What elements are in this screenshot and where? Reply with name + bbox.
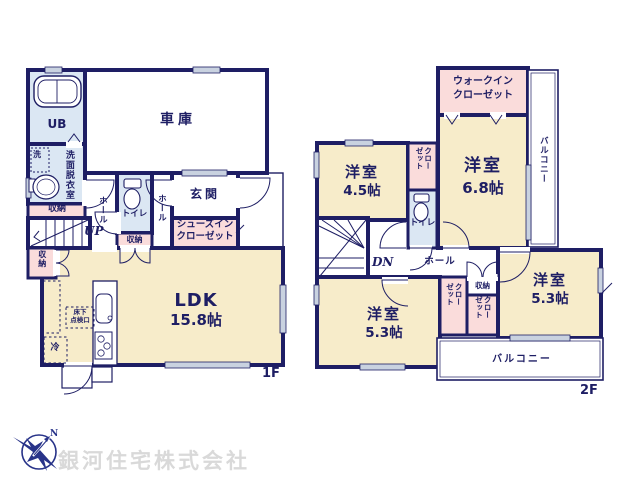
label-washroom: 洗面脱衣室 <box>63 150 73 200</box>
label-toilet-1f: トイレ <box>118 210 151 219</box>
north-indicator: N <box>50 429 58 439</box>
label-bedroom45: 洋室 <box>322 164 402 181</box>
label-bedroom53a-size: 5.3帖 <box>344 326 424 341</box>
label-hall-2: ホール <box>156 194 165 223</box>
label-stairs-up: UP <box>84 225 104 238</box>
bedroom-45 <box>317 143 408 220</box>
label-ldk-size: 15.8帖 <box>146 312 246 329</box>
label-shoe-closet-2: クローゼット <box>172 232 238 242</box>
label-bedroom53a: 洋室 <box>344 306 424 323</box>
company-logo: N <box>13 429 58 471</box>
label-bedroom68: 洋室 <box>443 157 523 176</box>
label-floor-2f: 2F <box>580 384 598 398</box>
label-closet-b: クローゼット <box>442 283 465 331</box>
label-shoe-closet-1: シューズイン <box>172 220 238 230</box>
label-hall-1: ホール <box>97 196 106 225</box>
label-unit-bath: UB <box>40 118 74 131</box>
label-wic-2: クローゼット <box>438 90 528 101</box>
label-floor-1f: 1F <box>262 367 280 381</box>
label-underfloor-2: 点検口 <box>66 317 94 324</box>
entry-porch <box>238 173 283 248</box>
label-ldk: LDK <box>146 291 246 311</box>
floor-plan-drawing: N <box>0 0 640 480</box>
porch-steps-1f <box>62 367 112 388</box>
kitchen-fixture <box>93 281 117 365</box>
label-closet-c: クローゼット <box>471 296 494 336</box>
label-storage-b: 収納 <box>118 236 151 245</box>
company-name: 銀河住宅株式会社 <box>58 445 250 475</box>
toilet-2f-fixture <box>414 194 429 221</box>
label-stairs-down: DN <box>372 256 393 269</box>
label-storage-a: 収納 <box>30 205 84 215</box>
label-bedroom53b-size: 5.3帖 <box>510 292 590 307</box>
label-hall-2f: ホール <box>410 257 470 267</box>
label-fridge: 冷 <box>44 344 66 354</box>
label-closet-a: クローゼット <box>411 147 435 191</box>
toilet-1f-fixture <box>124 179 141 209</box>
label-washer: 洗 <box>33 151 41 160</box>
label-entrance: 玄関 <box>185 188 225 201</box>
label-storage-2f: 収納 <box>467 282 498 290</box>
label-wic-1: ウォークイン <box>438 76 528 87</box>
label-balcony-bottom: バルコニー <box>470 354 574 365</box>
label-bedroom68-size: 6.8帖 <box>443 180 523 197</box>
label-balcony-right: バルコニー <box>538 136 547 184</box>
bedroom45-door <box>380 222 406 248</box>
label-bedroom53b: 洋室 <box>510 272 590 289</box>
label-bedroom45-size: 4.5帖 <box>322 184 402 199</box>
floor-plan: N 車庫 UB 洗面脱衣室 洗 収納 ホール UP トイレ 収納 ホール 玄関 … <box>0 0 640 480</box>
label-storage-c: 収納 <box>37 250 46 268</box>
label-toilet-2f: トイレ <box>406 219 439 228</box>
label-garage: 車庫 <box>138 113 218 128</box>
bathtub-fixture <box>34 76 81 107</box>
